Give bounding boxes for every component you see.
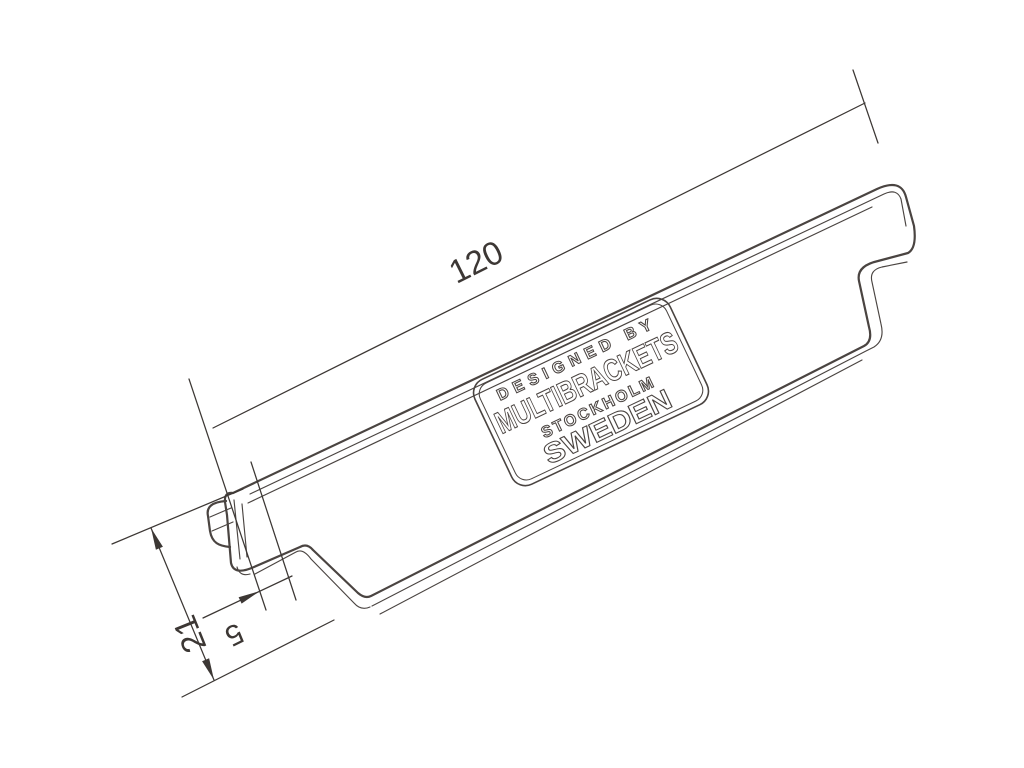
dimension-step-label: 5 <box>220 616 249 652</box>
dimension-width-arrow-top <box>151 528 163 550</box>
dimension-width-label: 21 <box>165 610 213 658</box>
part-tab-detail-line <box>212 522 233 531</box>
bracket-technical-drawing: DESIGNED BY MULTIBRACKETS STOCKHOLM SWED… <box>0 0 1024 768</box>
dimension-width: 21 <box>112 489 334 697</box>
dimension-step-arrow <box>239 591 260 604</box>
dimension-step: 5 <box>203 462 296 652</box>
dimension-length: 120 <box>189 70 878 610</box>
technical-drawing-canvas: DESIGNED BY MULTIBRACKETS STOCKHOLM SWED… <box>0 0 1024 768</box>
dimension-width-arrow-bottom <box>202 658 214 680</box>
dimension-width-extension-top <box>112 489 243 544</box>
dimension-length-label: 120 <box>443 233 509 291</box>
dimension-length-extension-left <box>189 379 266 610</box>
